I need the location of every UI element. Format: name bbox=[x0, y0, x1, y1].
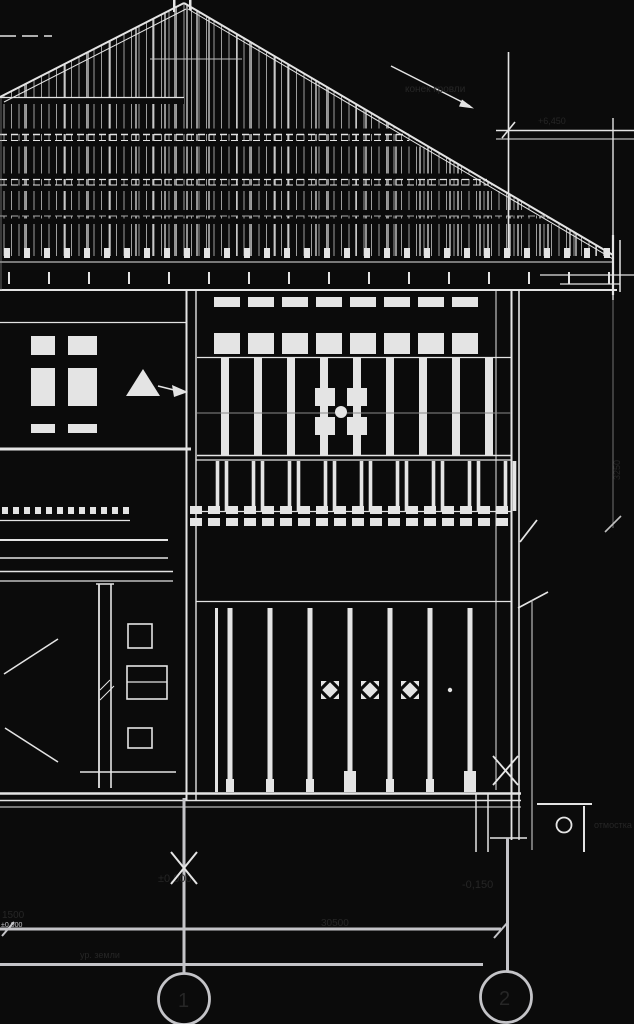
svg-text:±0,000: ±0,000 bbox=[1, 922, 22, 929]
svg-text:1500: 1500 bbox=[2, 910, 25, 921]
svg-text:отмостка: отмостка bbox=[594, 820, 632, 830]
svg-text:ур. земли: ур. земли bbox=[80, 950, 120, 960]
svg-text:конек кровли: конек кровли bbox=[405, 84, 465, 95]
svg-text:30500: 30500 bbox=[321, 918, 349, 929]
svg-text:1: 1 bbox=[178, 990, 189, 1012]
svg-text:+6,450: +6,450 bbox=[538, 116, 566, 126]
svg-text:3250: 3250 bbox=[612, 460, 622, 480]
svg-text:2: 2 bbox=[499, 988, 510, 1010]
svg-text:-0,150: -0,150 bbox=[462, 879, 493, 891]
